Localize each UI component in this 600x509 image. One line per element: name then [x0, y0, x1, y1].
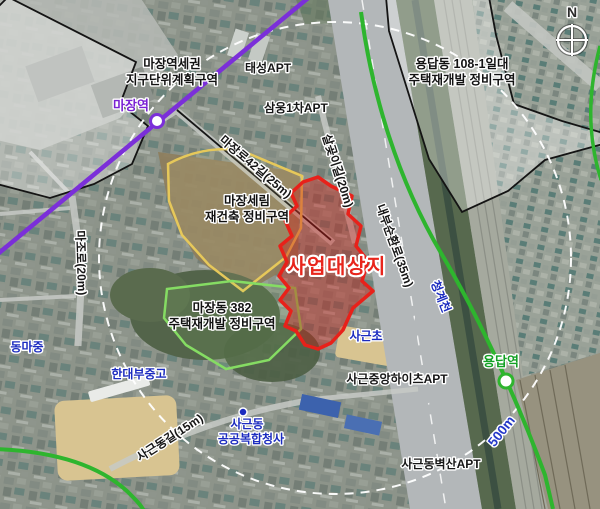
label-samung-apt: 삼웅1차APT [264, 100, 328, 115]
label-sageun-complex-2: 공공복합청사 [218, 431, 284, 446]
zone-label-382-2: 주택재개발 정비구역 [169, 316, 276, 331]
station-label-majang: 마장역 [113, 98, 149, 113]
map-canvas: N 마장역세권 지구단위계획구역 태성APT 용답동 108-1일대 주택재개발… [0, 0, 600, 509]
label-taeseong-apt: 태성APT [245, 60, 292, 75]
zone-label-yongdap-1: 용답동 108-1일대 [416, 56, 509, 71]
label-sageun-heights: 사근중앙하이츠APT [346, 371, 448, 386]
label-dongma-middle: 동마중 [10, 339, 43, 354]
road-label-majoro: 마조로(20m) [73, 230, 90, 296]
zone-label-serim-1: 마장세림 [224, 193, 270, 208]
label-sageun-byeoksan: 사근동벽산APT [401, 456, 481, 471]
project-site-label: 사업대상지 [287, 255, 387, 278]
north-label: N [567, 4, 577, 20]
station-marker-yongdap [499, 374, 513, 388]
satellite-map: N 마장역세권 지구단위계획구역 태성APT 용답동 108-1일대 주택재개발… [0, 0, 600, 509]
station-label-yongdap: 용답역 [483, 354, 519, 369]
zone-label-yongdap-2: 주택재개발 정비구역 [409, 72, 516, 87]
label-handae-school: 한대부중고 [111, 366, 166, 381]
label-sageun-complex-1: 사근동 [230, 416, 263, 431]
public-complex-marker [239, 408, 247, 416]
zone-label-majang-station-area-2: 지구단위계획구역 [126, 72, 218, 87]
zone-label-majang-station-area-1: 마장역세권 [143, 56, 201, 71]
zone-label-serim-2: 재건축 정비구역 [205, 209, 289, 224]
station-marker-majang [151, 115, 164, 128]
zone-label-382-1: 마장동 382 [193, 300, 252, 315]
label-sageun-elementary: 사근초 [349, 328, 382, 343]
